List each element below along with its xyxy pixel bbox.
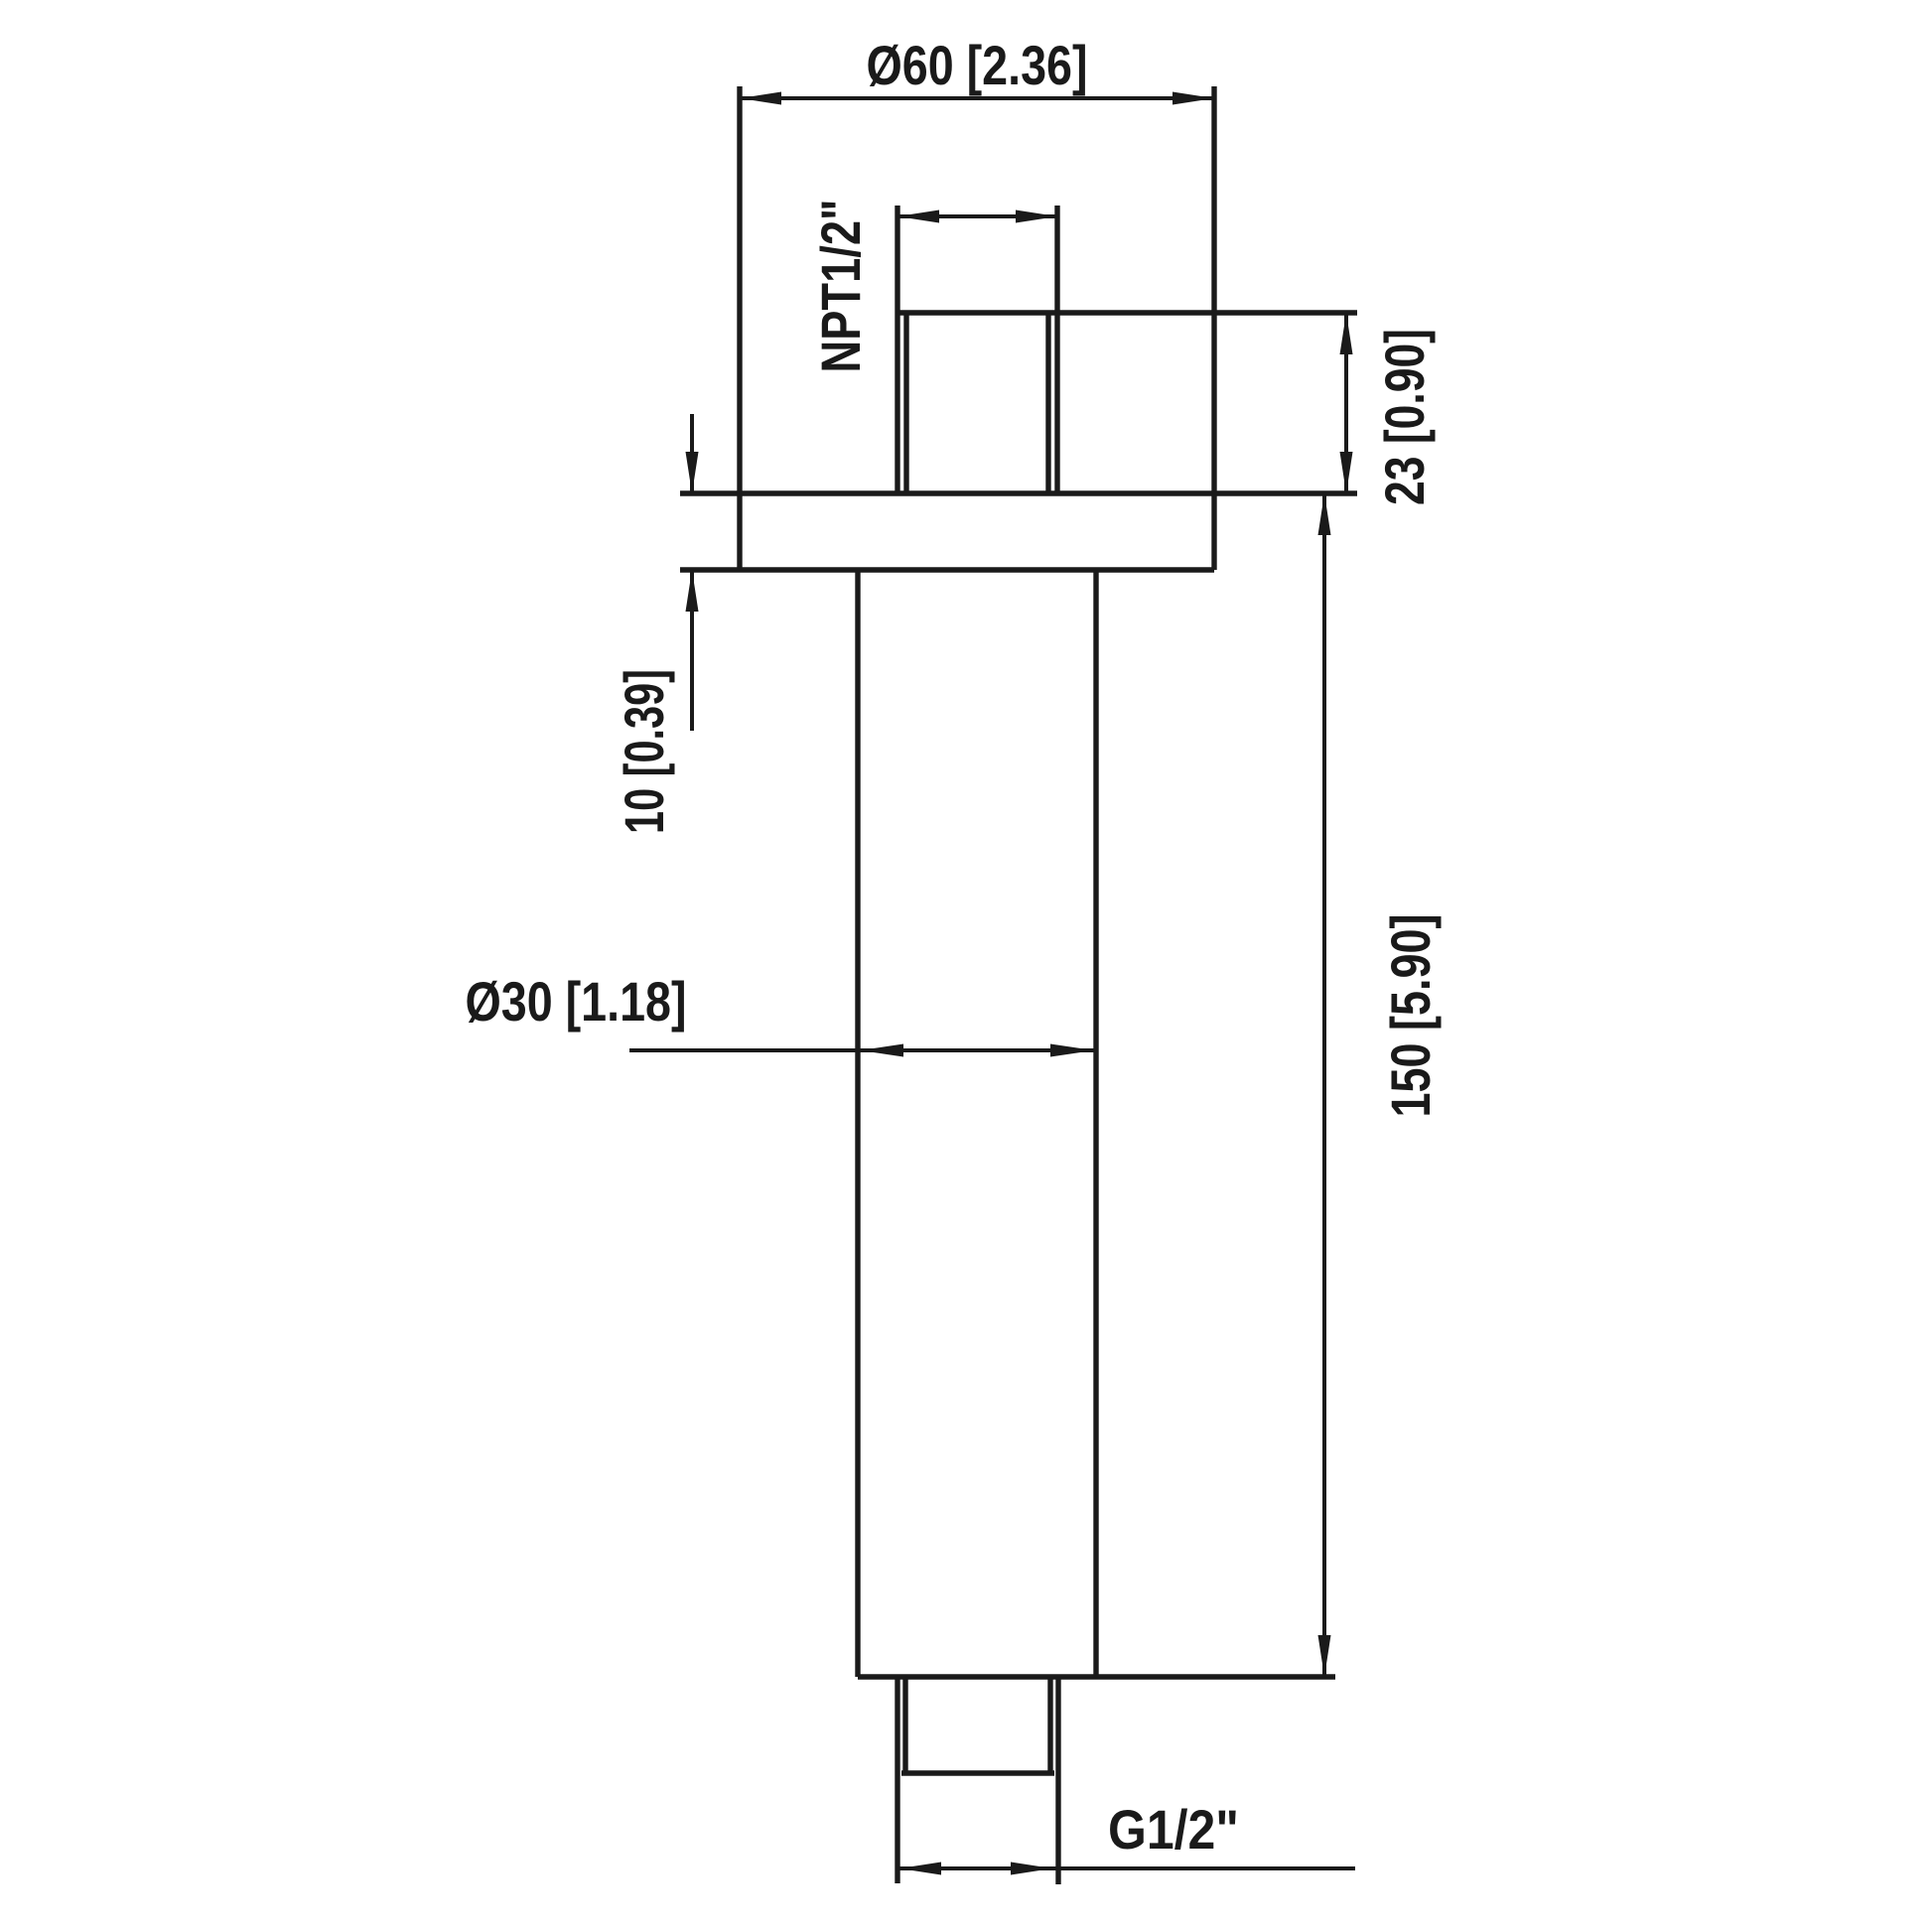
svg-text:10 [0.39]: 10 [0.39] — [613, 669, 675, 834]
svg-text:NPT1/2": NPT1/2" — [809, 200, 872, 373]
svg-text:Ø60 [2.36]: Ø60 [2.36] — [867, 34, 1088, 96]
svg-text:G1/2": G1/2" — [1108, 1798, 1239, 1861]
svg-text:23 [0.90]: 23 [0.90] — [1373, 329, 1436, 505]
svg-text:Ø30 [1.18]: Ø30 [1.18] — [466, 970, 687, 1033]
svg-text:150 [5.90]: 150 [5.90] — [1379, 914, 1442, 1118]
